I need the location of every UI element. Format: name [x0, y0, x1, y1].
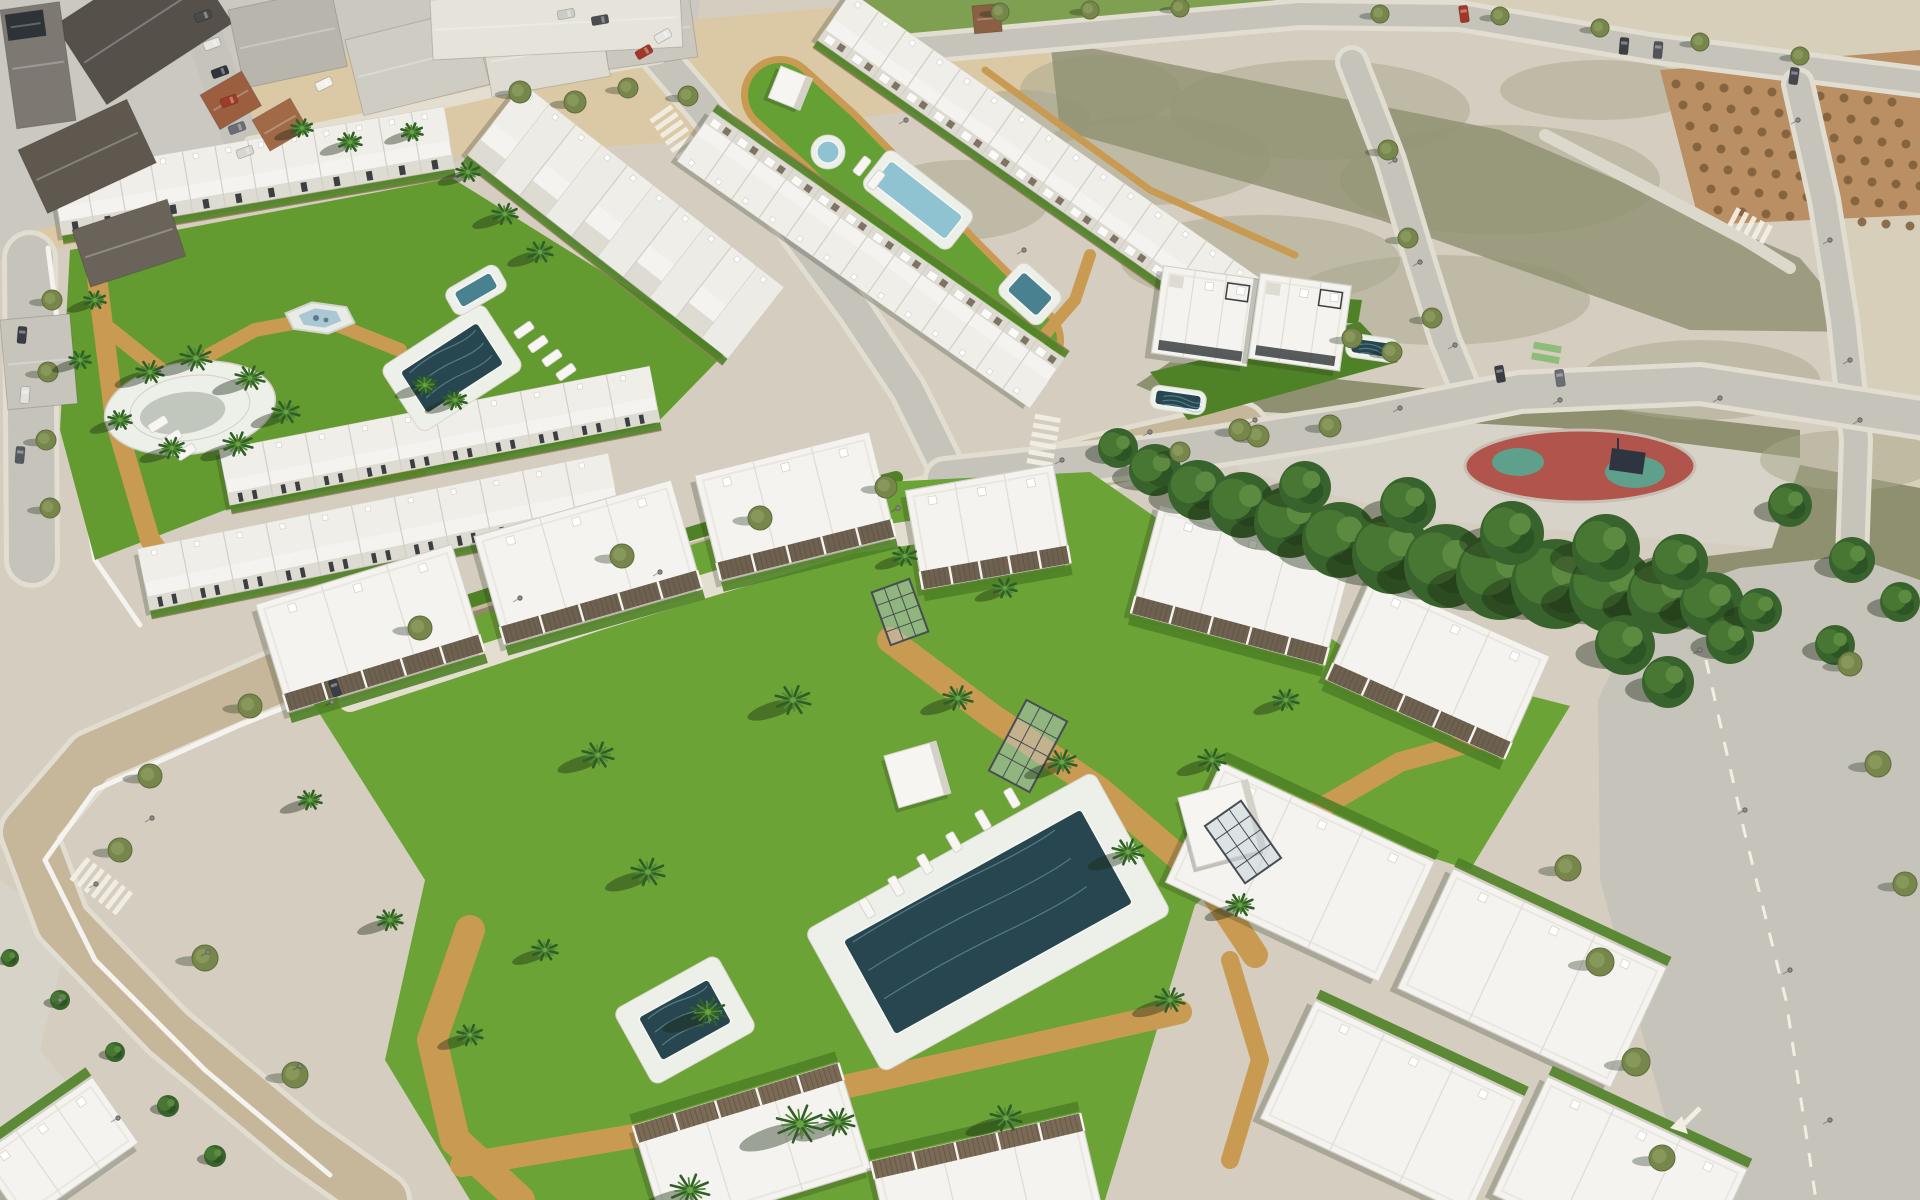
chimney: [280, 523, 286, 529]
palm-crown: [118, 418, 122, 422]
palm-crown: [468, 1033, 472, 1037]
chimney: [1205, 282, 1214, 291]
car-body: [17, 326, 27, 344]
tree-highlight: [1250, 428, 1262, 440]
orchard-tree: [1851, 197, 1860, 206]
car: [20, 386, 30, 404]
tree-highlight: [1373, 8, 1383, 18]
chimney: [258, 142, 264, 148]
orchard-tree: [1830, 134, 1839, 143]
car-windshield: [19, 330, 26, 334]
chimney: [365, 506, 371, 512]
palm-crown: [903, 554, 907, 558]
orchard-tree: [1906, 222, 1915, 231]
orchard-tree: [1672, 80, 1681, 89]
car-body: [1458, 5, 1469, 23]
tree-highlight: [1652, 1149, 1666, 1163]
lamp-post: [58, 998, 62, 1002]
lamp-post: [1418, 260, 1422, 264]
car-body: [20, 386, 30, 404]
fountain-jet: [313, 315, 319, 321]
tree-highlight: [1381, 143, 1392, 154]
orchard-tree: [1693, 143, 1702, 152]
villa-2: [1242, 272, 1352, 377]
chimney: [408, 497, 414, 503]
tree-highlight: [1868, 755, 1882, 769]
orchard-tree: [1779, 191, 1788, 200]
car: [1458, 5, 1469, 23]
orchard-tree: [1717, 145, 1726, 154]
tree-highlight: [1850, 546, 1866, 562]
orchard-tree: [1899, 201, 1908, 210]
tree-highlight: [1898, 590, 1912, 604]
tree-highlight: [1558, 859, 1572, 873]
orchard-tree: [1751, 107, 1760, 116]
tree-highlight: [1788, 491, 1803, 506]
lamp-post: [658, 570, 662, 574]
tree-highlight: [1425, 311, 1436, 322]
lamp-post: [1788, 968, 1792, 972]
chimney: [237, 532, 243, 538]
tree-highlight: [1173, 2, 1183, 12]
orchard-tree: [1882, 220, 1891, 229]
orchard-tree: [1895, 119, 1904, 128]
tree-highlight: [1239, 485, 1261, 507]
orchard-tree: [1707, 185, 1716, 194]
orchard-tree: [1765, 149, 1774, 158]
car: [1653, 41, 1663, 59]
tree-highlight: [411, 620, 424, 633]
villa-1: [1145, 265, 1259, 372]
palm-crown: [790, 697, 796, 703]
tree-highlight: [1758, 596, 1773, 611]
tree-highlight: [141, 768, 154, 781]
orchard-tree: [1731, 187, 1740, 196]
chimney: [319, 434, 325, 440]
chimney: [324, 131, 330, 137]
orchard-tree: [1878, 138, 1887, 147]
tree-highlight: [41, 365, 52, 376]
car: [1619, 37, 1629, 55]
chimney: [405, 417, 411, 423]
lamp-post: [896, 506, 900, 510]
orchard-tree: [1854, 136, 1863, 145]
chimney: [506, 536, 516, 546]
chimney: [722, 477, 732, 487]
tree-highlight: [167, 1099, 174, 1106]
lamp-post: [518, 596, 522, 600]
orchard-tree: [1748, 168, 1757, 177]
tree-highlight: [1232, 422, 1244, 434]
tree-highlight: [1693, 36, 1703, 46]
chimney: [276, 442, 282, 448]
tree-highlight: [111, 842, 124, 855]
tree-highlight: [1709, 584, 1731, 606]
lamp-post: [904, 118, 908, 122]
lamp-post: [1858, 418, 1862, 422]
tree-highlight: [1590, 952, 1605, 967]
orchard-tree: [1844, 176, 1853, 185]
orchard-tree: [1837, 155, 1846, 164]
lamp-post: [206, 950, 210, 954]
lamp-post: [1698, 648, 1702, 652]
orchard-tree: [1840, 94, 1849, 103]
tree-highlight: [1833, 633, 1847, 647]
chimney: [579, 463, 585, 469]
tree-highlight: [1677, 545, 1696, 564]
car: [15, 446, 25, 464]
tree-highlight: [241, 698, 254, 711]
tree-highlight: [1841, 656, 1854, 669]
orchard-tree: [1885, 159, 1894, 168]
palm-crown: [248, 376, 253, 381]
palm-crown: [1125, 849, 1130, 854]
orchard-tree: [1902, 140, 1911, 149]
tree-highlight: [512, 84, 524, 96]
tree-highlight: [1173, 445, 1184, 456]
orchard-tree: [1758, 128, 1767, 137]
palm-crown: [645, 869, 650, 874]
orchard-tree: [1679, 101, 1688, 110]
lamp-post: [1828, 1118, 1832, 1122]
orchard-tree: [1892, 180, 1901, 189]
orchard-tree: [1700, 164, 1709, 173]
town-building: [5, 10, 46, 41]
chimney: [977, 487, 986, 496]
orchard-tree: [1772, 170, 1781, 179]
palm-crown: [388, 918, 392, 922]
palm-crown: [503, 212, 507, 216]
orchard-tree: [1875, 199, 1884, 208]
orchard-tree: [1727, 105, 1736, 114]
tree-highlight: [1666, 666, 1684, 684]
chimney: [780, 462, 790, 472]
chimney: [637, 498, 647, 508]
orchard-tree: [1762, 210, 1771, 219]
orchard-tree: [1823, 113, 1832, 122]
orchard-tree: [1686, 122, 1695, 131]
palm-crown: [1060, 760, 1065, 765]
tree-highlight: [1401, 231, 1412, 242]
tree-highlight: [1626, 1052, 1641, 1067]
tree-highlight: [1793, 50, 1803, 60]
orchard-tree: [1741, 147, 1750, 156]
car-windshield: [22, 390, 29, 394]
orchard-tree: [1696, 82, 1705, 91]
palm-crown: [956, 696, 961, 701]
tree-highlight: [1493, 10, 1503, 20]
chimney: [194, 541, 200, 547]
lamp-post: [1796, 118, 1800, 122]
tree-highlight: [39, 433, 50, 444]
palm-crown: [1238, 903, 1242, 907]
lamp-post: [1828, 238, 1832, 242]
scene-svg: [0, 0, 1920, 1200]
palm-crown: [1168, 998, 1173, 1003]
lamp-post: [298, 1064, 302, 1068]
tree-highlight: [993, 6, 1003, 16]
chimney: [322, 515, 328, 521]
car: [1554, 369, 1565, 387]
orchard-tree: [1768, 88, 1777, 97]
chimney: [491, 400, 497, 406]
tree-highlight: [621, 81, 632, 92]
palm-crown: [300, 126, 304, 130]
orchard-tree: [1786, 212, 1795, 221]
lamp-post: [330, 700, 334, 704]
car-body: [1653, 41, 1663, 59]
chimney: [451, 489, 457, 495]
tree-highlight: [1083, 4, 1093, 14]
chimney: [356, 125, 362, 131]
palm-crown: [705, 1009, 711, 1015]
chimney: [362, 425, 368, 431]
tree-highlight: [1603, 527, 1626, 550]
tree-highlight: [43, 501, 54, 512]
palm-crown: [543, 948, 547, 952]
orchard-tree: [1755, 189, 1764, 198]
orchard-tree: [1734, 126, 1743, 135]
tree-highlight: [878, 479, 890, 491]
chimney: [1184, 522, 1194, 532]
tree-highlight: [1622, 626, 1642, 646]
palm-crown: [284, 410, 288, 414]
lamp-post: [94, 882, 98, 886]
car-body: [1788, 67, 1799, 85]
orchard-tree: [1775, 109, 1784, 118]
orchard-tree: [1703, 103, 1712, 112]
tree-highlight: [1345, 331, 1356, 342]
palm-crown: [796, 1120, 804, 1128]
palm-crown: [687, 1187, 693, 1193]
lamp-post: [1718, 396, 1722, 400]
tree-highlight: [1116, 436, 1130, 450]
palm-crown: [148, 370, 152, 374]
lamp-post: [1060, 458, 1064, 462]
tree-highlight: [1385, 345, 1396, 356]
palm-crown: [170, 446, 174, 450]
lamp-post: [150, 816, 154, 820]
car-windshield: [1655, 45, 1662, 49]
lamp-post: [1848, 358, 1852, 362]
villa-terrace: [1169, 275, 1185, 289]
playground-pad: [1492, 448, 1544, 476]
tree-highlight: [1405, 488, 1424, 507]
orchard-tree: [1710, 124, 1719, 133]
lamp-post: [1393, 158, 1397, 162]
tree-highlight: [214, 1149, 221, 1156]
chimney: [389, 119, 395, 125]
tree-highlight: [114, 1046, 121, 1053]
chimney: [1330, 293, 1339, 302]
playground: [1465, 430, 1695, 502]
chimney: [620, 375, 626, 381]
orchard-tree: [1847, 115, 1856, 124]
car-windshield: [17, 450, 24, 454]
palm-crown: [538, 250, 542, 254]
palm-crown: [423, 383, 427, 387]
tree-highlight: [1303, 471, 1321, 489]
chimney: [225, 147, 231, 153]
fountain-jet: [324, 318, 329, 323]
car: [17, 326, 27, 344]
chimney: [193, 153, 199, 159]
chimney: [928, 496, 937, 505]
chimney: [1300, 289, 1309, 298]
tree-highlight: [1322, 418, 1334, 430]
lamp-post: [116, 1116, 120, 1120]
chimney: [571, 517, 581, 527]
car-windshield: [1621, 41, 1628, 45]
palm-crown: [1210, 758, 1214, 762]
tree-highlight: [751, 510, 764, 523]
palm-crown: [595, 752, 600, 757]
lamp-post: [1148, 430, 1152, 434]
palm-crown: [1003, 1115, 1008, 1120]
tree-highlight: [567, 94, 579, 106]
chimney: [151, 550, 157, 556]
orchard-tree: [1861, 157, 1870, 166]
palm-crown: [1003, 586, 1007, 590]
aerial-render: [0, 0, 1920, 1200]
palm-crown: [93, 298, 97, 302]
orchard-tree: [1714, 206, 1723, 215]
tree-highlight: [1896, 876, 1909, 889]
pool-water: [817, 141, 839, 163]
orchard-tree: [1720, 84, 1729, 93]
car-body: [15, 446, 25, 464]
palm-crown: [835, 1119, 840, 1124]
orchard-tree: [1888, 98, 1897, 107]
palm-crown: [410, 130, 414, 134]
orchard-tree: [1909, 161, 1918, 170]
lamp-post: [1253, 418, 1257, 422]
chimney: [422, 114, 428, 120]
chimney: [1236, 286, 1245, 295]
orchard-tree: [1864, 96, 1873, 105]
palm-crown: [453, 398, 457, 402]
complexB-round-pool: [811, 135, 845, 169]
chimney: [1026, 478, 1035, 487]
tree-highlight: [1195, 471, 1215, 491]
play-structure: [1609, 448, 1646, 475]
chimney: [160, 159, 166, 165]
palm-crown: [466, 170, 470, 174]
chimney: [493, 480, 499, 486]
lamp-post: [1743, 808, 1747, 812]
orchard-tree: [1724, 166, 1733, 175]
car-body: [1554, 369, 1565, 387]
palm-crown: [193, 355, 198, 360]
orchard-tree: [1782, 130, 1791, 139]
tree-highlight: [9, 952, 15, 958]
chimney: [534, 392, 540, 398]
tree-highlight: [1728, 625, 1744, 641]
tree-highlight: [1509, 513, 1531, 535]
tree-highlight: [681, 89, 692, 100]
villa-terrace: [1266, 282, 1282, 296]
tree-highlight: [613, 548, 626, 561]
tree-highlight: [1593, 22, 1603, 32]
orchard-tree: [1868, 178, 1877, 187]
chimney: [536, 471, 542, 477]
palm-crown: [236, 442, 241, 447]
palm-crown: [1284, 698, 1288, 702]
lamp-post: [1558, 398, 1562, 402]
palm-crown: [308, 798, 312, 802]
lamp-post: [1453, 343, 1457, 347]
orchard-tree: [1744, 86, 1753, 95]
palm-crown: [348, 140, 352, 144]
chimney: [839, 448, 849, 458]
chimney: [577, 384, 583, 390]
orchard-tree: [1871, 117, 1880, 126]
car: [1788, 67, 1799, 85]
palm-crown: [78, 358, 82, 362]
tree-highlight: [45, 293, 56, 304]
lamp-post: [1398, 406, 1402, 410]
lamp-post: [1022, 248, 1026, 252]
car-body: [1619, 37, 1629, 55]
orchard-tree: [1858, 218, 1867, 227]
